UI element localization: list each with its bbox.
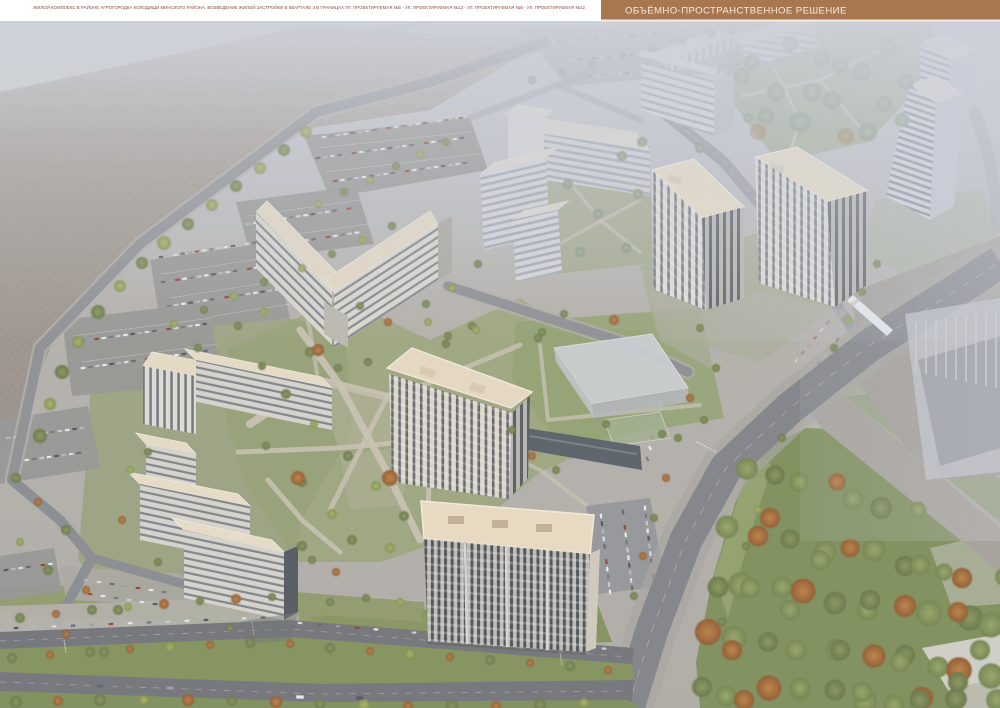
svg-text:ЖИЛОЙ КОМПЛЕКС В РАЙОНЕ АГРОГО: ЖИЛОЙ КОМПЛЕКС В РАЙОНЕ АГРОГОРОДКА КОЛО… <box>33 3 585 10</box>
svg-text:ОБЪЁМНО-ПРОСТРАНСТВЕННОЕ РЕШЕН: ОБЪЁМНО-ПРОСТРАНСТВЕННОЕ РЕШЕНИЕ <box>625 6 847 17</box>
